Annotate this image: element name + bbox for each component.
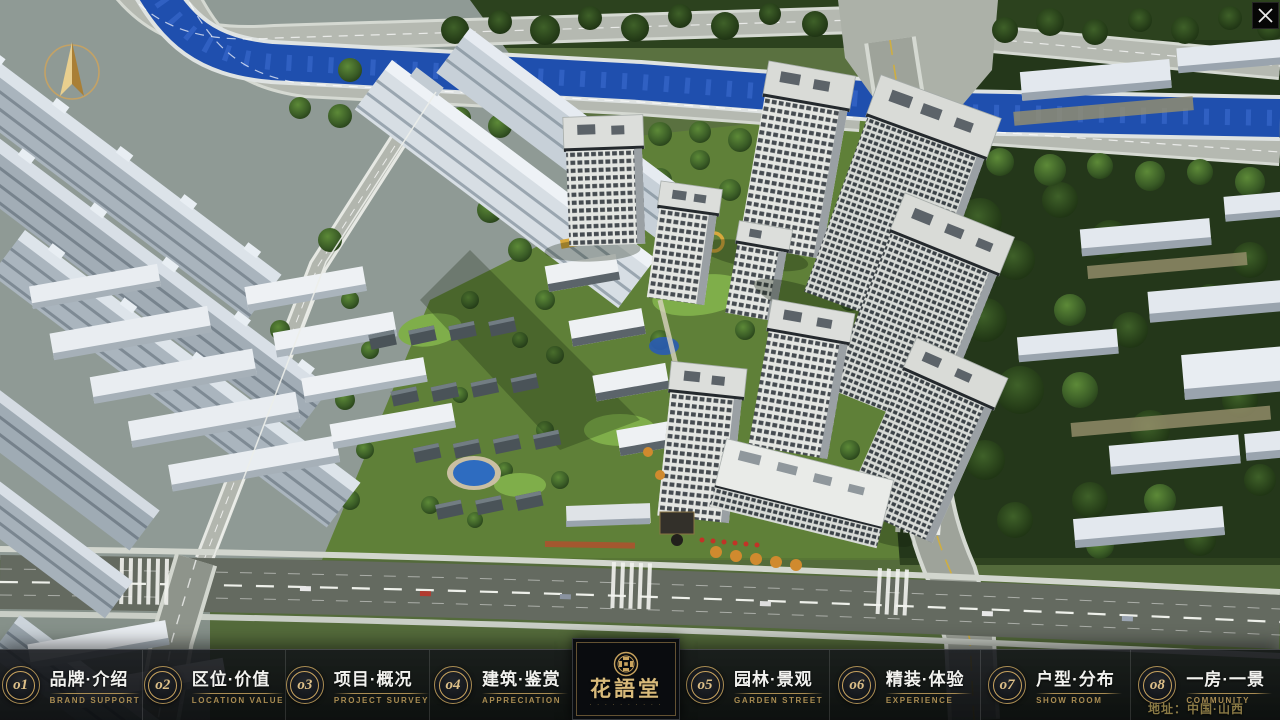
- nav-item-location-value[interactable]: o2 区位·价值 LOCATION VALUE: [143, 650, 286, 720]
- bottom-nav-left: o1 品牌·介绍 BRAND SUPPORT o2 区位·价值 LOCATION…: [0, 649, 572, 720]
- gold-divider: [50, 693, 141, 694]
- gold-divider: [1186, 693, 1272, 694]
- nav-item-interior-experience[interactable]: o6 精装·体验 EXPERIENCE: [830, 650, 980, 720]
- nav-label-zh: 建筑·鉴赏: [482, 665, 561, 690]
- nav-label-en: PROJECT SURVEY: [334, 696, 429, 705]
- project-address: 地址：中国·山西: [1148, 700, 1244, 717]
- nav-label-en: LOCATION VALUE: [192, 696, 284, 705]
- close-button[interactable]: [1252, 2, 1279, 29]
- nav-label-zh: 项目·概况: [334, 665, 413, 690]
- gold-divider: [334, 693, 429, 694]
- nav-label-zh: 区位·价值: [192, 665, 271, 690]
- brand-name: 花語堂: [590, 679, 662, 700]
- nav-item-garden-landscape[interactable]: o5 园林·景观 GARDEN STREET: [680, 650, 830, 720]
- round-seal-emblem-icon: [613, 651, 639, 677]
- nav-number-badge: o4: [434, 666, 472, 704]
- nav-item-architecture[interactable]: o4 建筑·鉴赏 APPRECIATION: [430, 650, 572, 720]
- gold-divider: [886, 693, 972, 694]
- nav-label-zh: 品牌·介绍: [50, 665, 129, 690]
- gold-divider: [734, 693, 823, 694]
- nav-number-badge: o8: [1138, 666, 1176, 704]
- nav-label-en: SHOW ROOM: [1036, 696, 1102, 705]
- nav-label-zh: 精装·体验: [886, 665, 965, 690]
- nav-label-en: APPRECIATION: [482, 696, 561, 705]
- swimming-pool: [453, 460, 495, 486]
- nav-number-badge: o5: [686, 666, 724, 704]
- nav-label-en: EXPERIENCE: [886, 696, 954, 705]
- nav-item-unit-layouts[interactable]: o7 户型·分布 SHOW ROOM: [981, 650, 1131, 720]
- brand-subtitle: · · · · · · · · · ·: [590, 702, 663, 708]
- nav-label-en: GARDEN STREET: [734, 696, 823, 705]
- nav-number-badge: o2: [144, 666, 182, 704]
- gold-divider: [192, 693, 284, 694]
- nav-label-en: BRAND SUPPORT: [50, 696, 141, 705]
- nav-item-project-survey[interactable]: o3 项目·概况 PROJECT SURVEY: [286, 650, 430, 720]
- nav-label-zh: 园林·景观: [734, 665, 813, 690]
- gold-divider: [482, 693, 568, 694]
- compass-north-icon: [40, 34, 104, 110]
- nav-label-zh: 一房·一景: [1186, 665, 1265, 690]
- nav-item-brand-intro[interactable]: o1 品牌·介绍 BRAND SUPPORT: [0, 650, 143, 720]
- masterplan-render: [0, 0, 1280, 720]
- nav-number-badge: o7: [988, 666, 1026, 704]
- nav-label-zh: 户型·分布: [1036, 665, 1115, 690]
- nav-number-badge: o6: [838, 666, 876, 704]
- gold-divider: [1036, 693, 1122, 694]
- close-x-icon: [1258, 8, 1273, 23]
- nav-number-badge: o1: [2, 666, 40, 704]
- brand-logo-panel: 花語堂 · · · · · · · · · ·: [572, 638, 680, 720]
- nav-number-badge: o3: [286, 666, 324, 704]
